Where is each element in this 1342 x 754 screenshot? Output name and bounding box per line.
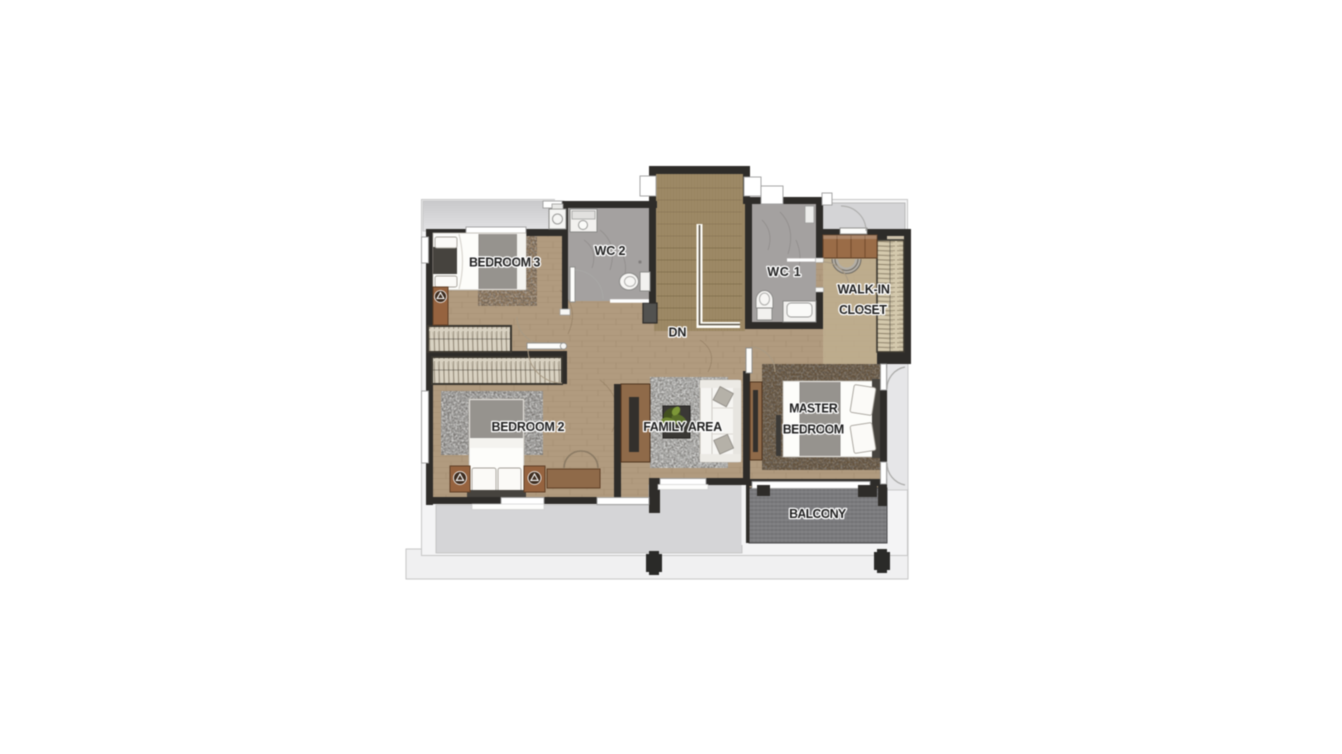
svg-text:WC 1: WC 1 bbox=[767, 265, 801, 279]
svg-text:MASTER: MASTER bbox=[789, 402, 838, 416]
svg-text:BALCONY: BALCONY bbox=[789, 507, 847, 521]
svg-text:BEDROOM: BEDROOM bbox=[783, 423, 845, 437]
svg-text:BEDROOM 2: BEDROOM 2 bbox=[492, 420, 565, 434]
svg-text:CLOSET: CLOSET bbox=[839, 303, 887, 317]
svg-text:WALK-IN: WALK-IN bbox=[837, 283, 890, 297]
svg-text:BEDROOM 3: BEDROOM 3 bbox=[469, 256, 541, 270]
svg-text:FAMILY AREA: FAMILY AREA bbox=[643, 420, 722, 434]
svg-text:WC 2: WC 2 bbox=[595, 244, 626, 258]
svg-text:DN: DN bbox=[669, 326, 687, 340]
